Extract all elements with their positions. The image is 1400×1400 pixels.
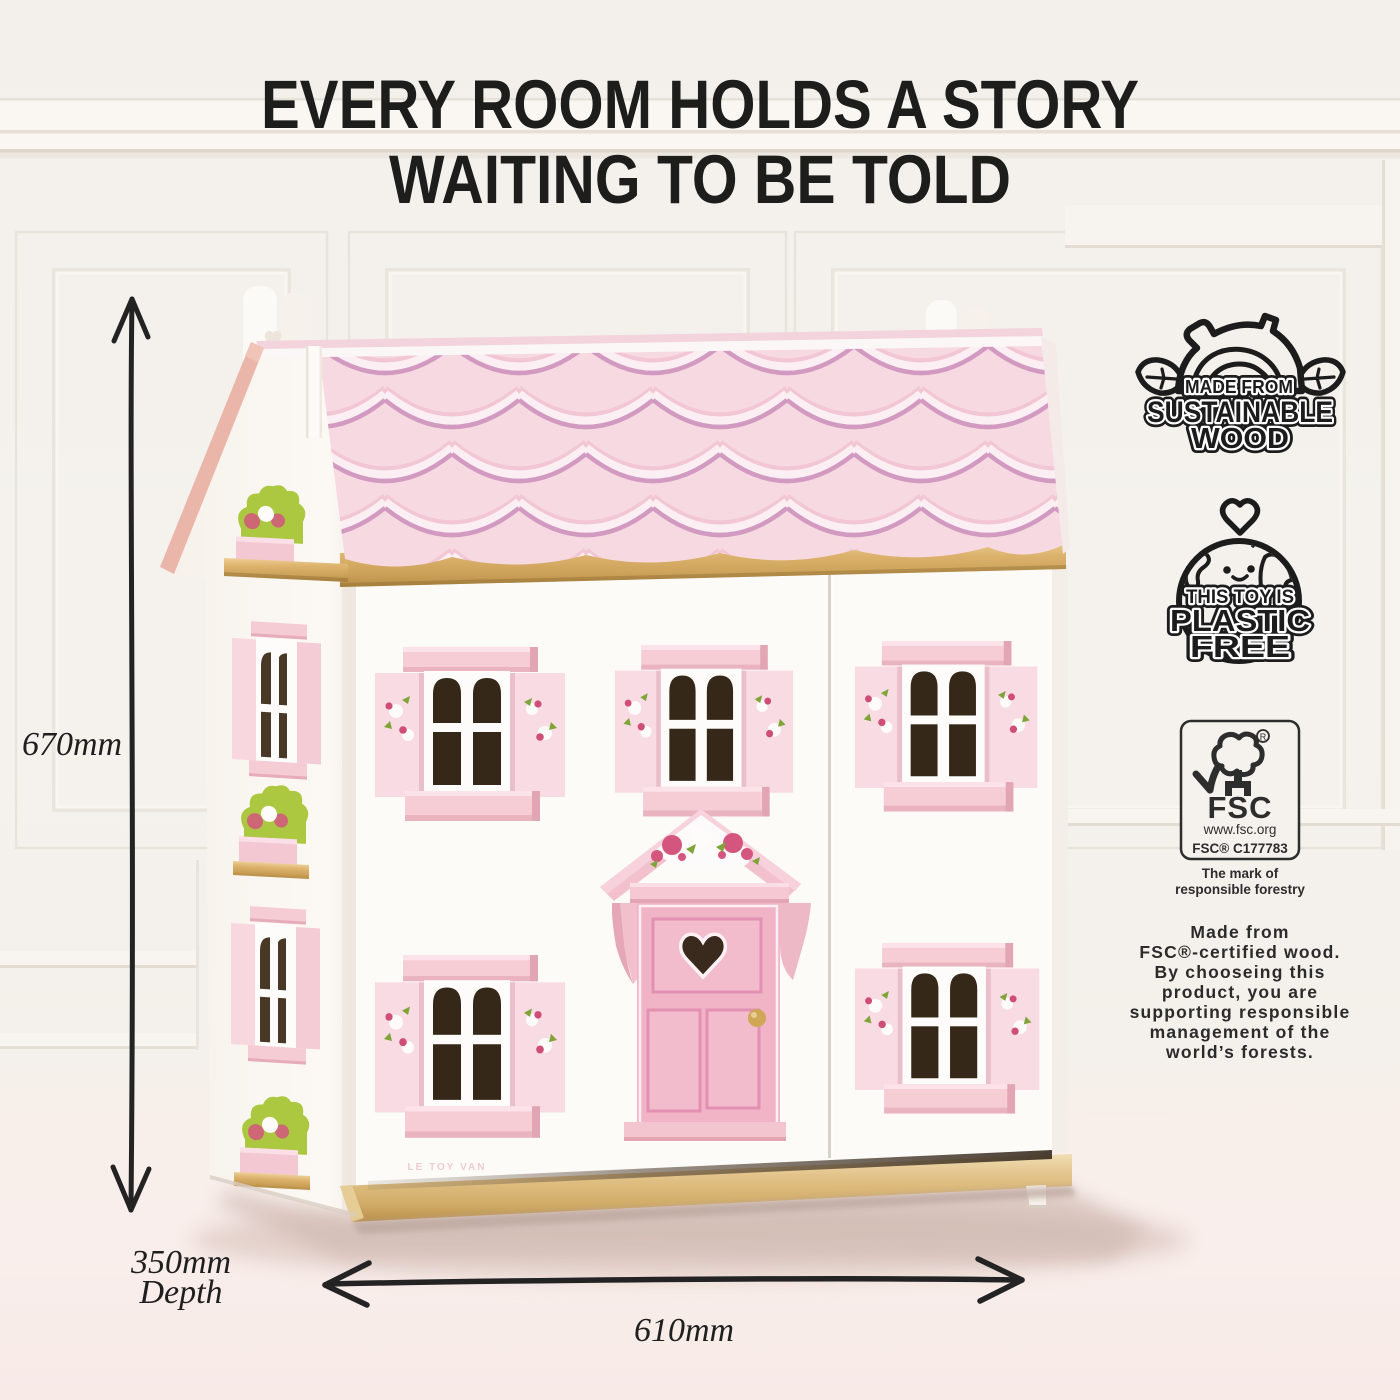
svg-text:FSC® C177783: FSC® C177783 [1192, 841, 1288, 856]
svg-text:The mark of: The mark of [1202, 866, 1279, 881]
svg-text:FSC®-certified wood.: FSC®-certified wood. [1139, 942, 1340, 962]
svg-text:FSC: FSC [1208, 790, 1273, 825]
svg-text:WOOD: WOOD [1191, 423, 1289, 455]
svg-text:670mm: 670mm [22, 726, 122, 763]
svg-text:world’s forests.: world’s forests. [1165, 1042, 1314, 1062]
svg-text:responsible forestry: responsible forestry [1175, 882, 1305, 897]
svg-text:WAITING TO BE TOLD: WAITING TO BE TOLD [389, 141, 1011, 218]
svg-text:Made from: Made from [1190, 922, 1289, 942]
svg-text:610mm: 610mm [634, 1312, 734, 1349]
svg-text:FREE: FREE [1190, 629, 1290, 664]
svg-text:R: R [1260, 732, 1267, 742]
svg-text:product, you are: product, you are [1162, 982, 1318, 1002]
svg-text:By chooseing this: By chooseing this [1154, 962, 1325, 982]
svg-text:EVERY ROOM HOLDS A STORY: EVERY ROOM HOLDS A STORY [261, 66, 1139, 143]
svg-text:LE TOY VAN: LE TOY VAN [408, 1162, 487, 1173]
svg-text:Depth: Depth [138, 1274, 222, 1311]
svg-text:MADE FROM: MADE FROM [1185, 377, 1293, 397]
svg-text:www.fsc.org: www.fsc.org [1203, 822, 1277, 837]
svg-text:management of the: management of the [1150, 1022, 1331, 1042]
svg-text:supporting responsible: supporting responsible [1130, 1002, 1351, 1022]
